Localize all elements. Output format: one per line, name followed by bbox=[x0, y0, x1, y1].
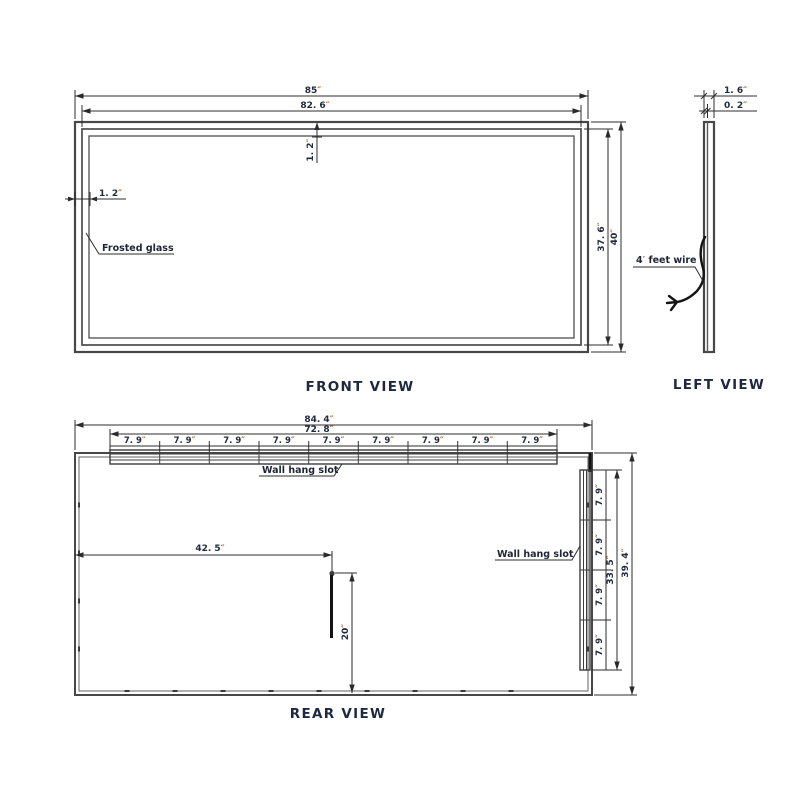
dim-label-slot-seg-9: 7. 9″ bbox=[521, 436, 543, 446]
dim-label-front-overall-width: 85″ bbox=[305, 86, 322, 96]
dim-rear-cord-offset: 42. 5″ bbox=[75, 544, 332, 577]
dim-label-rear-cord-drop: 20″ bbox=[341, 624, 351, 641]
dim-label-front-frame-side: 1. 2″ bbox=[99, 189, 122, 199]
dim-label-front-inner-width: 82. 6″ bbox=[300, 101, 329, 111]
rear-view-title: REAR VIEW bbox=[290, 706, 386, 722]
dim-rear-cord-drop: 20″ bbox=[335, 573, 357, 693]
dim-front-overall-width: 85″ bbox=[75, 86, 588, 119]
left-view: 1. 6″ 0. 2″ 4′ feet wire LEFT VIEW bbox=[633, 86, 765, 393]
dim-label-slot-seg-6: 7. 9″ bbox=[372, 436, 394, 446]
dim-label-front-frame-top: 1. 2″ bbox=[306, 138, 316, 161]
dim-label-rslot-seg-4: 7. 9″ bbox=[595, 634, 605, 656]
front-outer-frame bbox=[75, 122, 588, 352]
dim-label-front-outer-height: 40″ bbox=[610, 229, 620, 246]
dim-label-slot-seg-2: 7. 9″ bbox=[174, 436, 196, 446]
drawing-canvas: 85″ 82. 6″ 1. 2″ 1. 2″ Frost bbox=[0, 0, 800, 800]
wall-hang-slot-top-callout: Wall hang slot bbox=[259, 464, 342, 476]
dim-label-rear-cord-offset: 42. 5″ bbox=[195, 544, 224, 554]
power-wire bbox=[677, 237, 705, 302]
dim-label-rear-overall-width: 84. 4″ bbox=[304, 415, 333, 425]
power-wire-end bbox=[667, 296, 677, 310]
dim-label-rear-overall-height: 39. 4″ bbox=[621, 548, 631, 577]
front-view-title: FRONT VIEW bbox=[306, 379, 415, 395]
wall-hang-slot-top-label: Wall hang slot bbox=[262, 465, 339, 476]
front-glass-edge bbox=[89, 136, 574, 338]
dim-label-rear-slot-width: 72. 8″ bbox=[304, 425, 333, 435]
dim-label-left-panel: 0. 2″ bbox=[724, 101, 747, 111]
dim-label-slot-seg-7: 7. 9″ bbox=[422, 436, 444, 446]
dim-label-rslot-seg-2: 7. 9″ bbox=[595, 534, 605, 556]
wire-leader bbox=[633, 267, 703, 281]
frosted-glass-label: Frosted glass bbox=[102, 243, 174, 254]
frosted-glass-callout: Frosted glass bbox=[86, 233, 174, 254]
dim-label-slot-seg-4: 7. 9″ bbox=[273, 436, 295, 446]
rear-view: 7. 9″ 7. 9″ 7. 9″ 7. 9″ 7. 9″ 7. 9″ 7. 9… bbox=[75, 415, 637, 722]
dim-rear-slot-height: 33. 5″ bbox=[606, 470, 622, 670]
wall-hang-slot-right-label: Wall hang slot bbox=[497, 549, 574, 560]
technical-drawing: 85″ 82. 6″ 1. 2″ 1. 2″ Frost bbox=[0, 0, 800, 800]
rear-edge-ticks bbox=[78, 503, 589, 693]
dim-left-panel: 0. 2″ bbox=[699, 101, 757, 118]
dim-label-slot-seg-8: 7. 9″ bbox=[472, 436, 494, 446]
front-middle-frame bbox=[82, 129, 581, 345]
wall-hang-slot-right-callout: Wall hang slot bbox=[495, 546, 580, 560]
dim-label-slot-seg-1: 7. 9″ bbox=[124, 436, 146, 446]
feet-wire: 4′ feet wire bbox=[633, 237, 705, 310]
power-cord bbox=[329, 571, 334, 638]
dim-label-front-inner-height: 37. 6″ bbox=[597, 222, 607, 251]
dim-label-slot-seg-3: 7. 9″ bbox=[223, 436, 245, 446]
front-view: 85″ 82. 6″ 1. 2″ 1. 2″ Frost bbox=[65, 86, 626, 395]
dim-rear-top-slot-segments: 7. 9″ 7. 9″ 7. 9″ 7. 9″ 7. 9″ 7. 9″ 7. 9… bbox=[110, 436, 557, 451]
dim-label-left-thickness: 1. 6″ bbox=[724, 86, 747, 96]
dim-label-rear-slot-height: 33. 5″ bbox=[606, 555, 616, 584]
left-view-title: LEFT VIEW bbox=[673, 377, 765, 393]
wire-label: 4′ feet wire bbox=[636, 255, 696, 266]
dim-label-rslot-seg-1: 7. 9″ bbox=[595, 484, 605, 506]
dim-label-slot-seg-5: 7. 9″ bbox=[323, 436, 345, 446]
dim-label-rslot-seg-3: 7. 9″ bbox=[595, 584, 605, 606]
